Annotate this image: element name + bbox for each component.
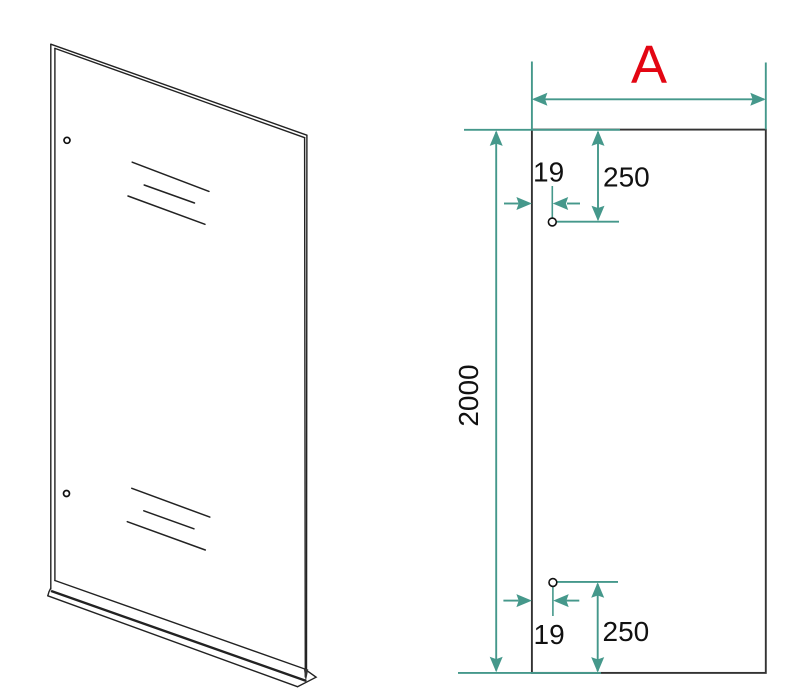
- svg-text:19: 19: [534, 619, 565, 650]
- svg-text:A: A: [631, 35, 667, 95]
- svg-text:19: 19: [533, 157, 564, 188]
- svg-text:250: 250: [603, 161, 650, 192]
- svg-text:2000: 2000: [453, 364, 484, 426]
- svg-text:250: 250: [603, 616, 650, 647]
